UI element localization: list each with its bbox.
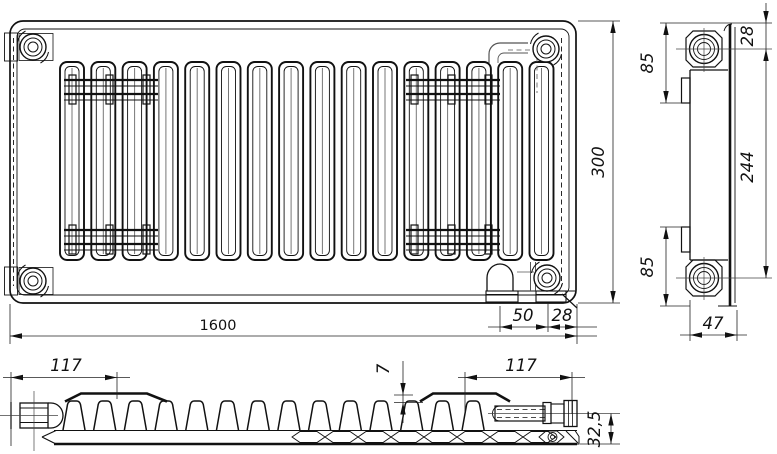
arrowhead: [565, 324, 577, 329]
arrowhead: [663, 227, 668, 239]
dim-top-connection-label: 28: [738, 26, 757, 47]
plan-fin: [278, 401, 300, 430]
bracket-upper: [682, 78, 691, 103]
plan-fin: [94, 401, 116, 430]
front-view: [5, 21, 578, 308]
hex-cell: [292, 432, 325, 443]
arrowhead: [725, 332, 737, 337]
arrowhead: [763, 49, 768, 61]
arrowhead: [560, 375, 572, 380]
arrowhead: [548, 324, 560, 329]
plan-fin: [217, 401, 239, 430]
arrowhead: [763, 266, 768, 278]
bracket-plate-left: [65, 394, 167, 402]
arrowhead: [663, 91, 668, 103]
dim-cover-step-label: 7: [374, 363, 393, 374]
arrowhead: [465, 375, 477, 380]
dim-connection-spacing-label: 244: [738, 151, 757, 183]
dim-right-bracket-label: 117: [505, 356, 537, 375]
convector-profile: [690, 70, 728, 260]
plan-fin: [186, 401, 208, 430]
arrowhead: [400, 383, 405, 395]
arrowhead: [663, 294, 668, 306]
plan-fin: [339, 401, 361, 430]
drawing-canvas: 1600 50 28 300: [0, 0, 777, 454]
dim-length-label: 1600: [200, 318, 237, 334]
plan-fin: [309, 401, 331, 430]
arrowhead: [536, 324, 548, 329]
arrowhead: [565, 333, 577, 338]
arrowhead: [500, 324, 512, 329]
top-view: [0, 372, 620, 451]
hex-cell: [457, 432, 490, 443]
valve-foot-right: [536, 291, 566, 302]
dim-upper-bracket-label: 85: [638, 53, 657, 74]
dim-bottom-connection-label: 32,5: [585, 411, 604, 448]
hex-cell: [358, 432, 391, 443]
side-dimensions: 28 244 85 85 47: [638, 3, 766, 341]
arrowhead: [610, 21, 615, 33]
base-strip: [42, 431, 577, 445]
arrowhead: [608, 432, 613, 444]
dim-depth-label: 47: [703, 314, 724, 333]
dim-left-bracket-label: 117: [50, 356, 82, 375]
dim-lower-bracket-label: 85: [638, 257, 657, 278]
plan-fin: [247, 401, 269, 430]
plan-fin: [124, 401, 146, 430]
convector-hex-pattern: [292, 432, 556, 443]
arrowhead: [663, 23, 668, 35]
plan-fin: [63, 401, 85, 430]
valve-foot-left: [486, 291, 518, 302]
plan-fin: [431, 401, 453, 430]
hex-cell: [424, 432, 457, 443]
arrowhead: [10, 333, 22, 338]
arrowhead: [105, 375, 117, 380]
hex-cell: [325, 432, 358, 443]
dim-valve-offset-label: 50: [513, 306, 534, 325]
valve-assembly: [486, 262, 577, 308]
dimension-arrows: [10, 11, 769, 444]
plan-fin: [155, 401, 177, 430]
plan-fins: [63, 401, 484, 430]
plan-fin: [401, 401, 423, 430]
arrowhead: [690, 332, 702, 337]
dim-end-offset-label: 28: [552, 306, 573, 325]
dim-height-label: 300: [589, 146, 608, 178]
plan-fin: [370, 401, 392, 430]
arrowhead: [11, 375, 23, 380]
radiator-technical-drawing: 1600 50 28 300: [0, 0, 777, 454]
hex-cell: [490, 432, 523, 443]
bracket-clamps: [64, 75, 500, 254]
corner-plugs: [18, 31, 563, 297]
arrowhead: [608, 414, 613, 426]
hex-cell: [391, 432, 424, 443]
arrowhead: [763, 11, 768, 23]
arrowhead: [610, 291, 615, 303]
bracket-lower: [682, 227, 691, 252]
